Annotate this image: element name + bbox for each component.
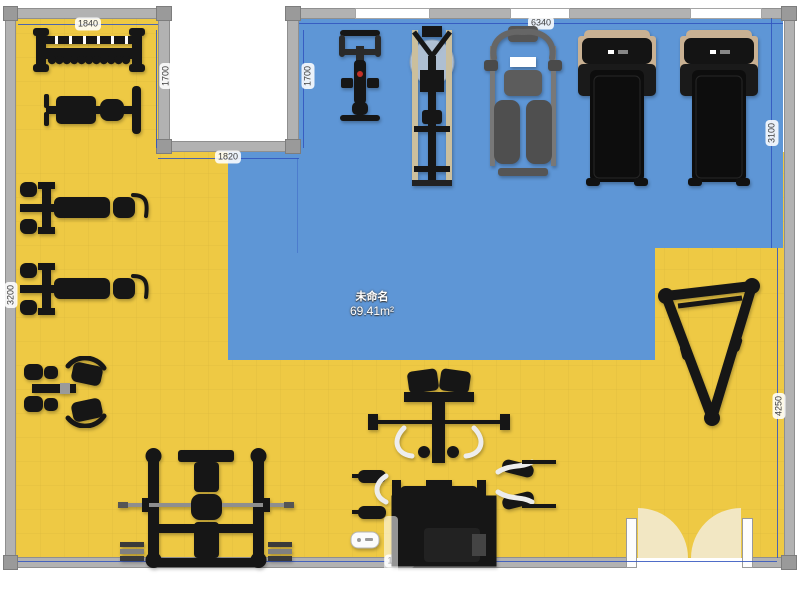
floor-scale[interactable] (350, 531, 380, 549)
dimension-label-1700-right[interactable]: 1700 (302, 63, 315, 89)
spin-bike[interactable] (328, 30, 392, 122)
leg-curl-machine[interactable] (24, 356, 112, 428)
wall-corner-post (781, 555, 797, 570)
wall-corner-post (781, 6, 797, 21)
wall-corner-post (156, 6, 172, 21)
dimension-line (156, 30, 157, 148)
floor-plan-canvas: 1840 1700 1700 1820 6340 3100 4250 3200 … (0, 0, 800, 596)
room-area: 69.41m² (317, 304, 427, 318)
wall-corner-post (3, 555, 18, 570)
room-label[interactable]: 未命名 69.41m² (317, 288, 427, 318)
window[interactable] (690, 8, 762, 19)
multi-station-trainer[interactable] (352, 368, 557, 568)
dumbbell-rack[interactable] (33, 28, 145, 72)
window[interactable] (355, 8, 430, 19)
treadmill[interactable] (578, 30, 656, 188)
dimension-label-3200[interactable]: 3200 (5, 282, 18, 308)
dimension-label-3100[interactable]: 3100 (766, 120, 779, 146)
dimension-extension-line (297, 158, 298, 253)
flat-bench[interactable] (40, 84, 142, 136)
dimension-label-4250[interactable]: 4250 (773, 393, 786, 419)
wall-corner-post (285, 6, 301, 21)
recumbent-bike[interactable] (484, 26, 562, 178)
rowing-machine[interactable] (406, 26, 458, 188)
wall-corner-post (285, 139, 301, 154)
a-frame-rack[interactable] (652, 270, 764, 430)
wall-corner-post (156, 139, 172, 154)
wall-corner-post (3, 6, 18, 21)
wall-right[interactable] (784, 8, 795, 568)
double-door-swing[interactable] (626, 508, 753, 568)
bench-machine[interactable] (20, 182, 152, 234)
bench-press-station[interactable] (118, 446, 294, 572)
wall-blue-left[interactable] (287, 8, 299, 152)
dimension-label-1700-left[interactable]: 1700 (160, 63, 173, 89)
mirror-strip (384, 516, 398, 578)
dimension-label-1820[interactable]: 1820 (215, 151, 241, 164)
bench-machine[interactable] (20, 263, 152, 315)
dimension-line (303, 30, 304, 148)
room-name: 未命名 (317, 288, 427, 304)
treadmill[interactable] (680, 30, 758, 188)
